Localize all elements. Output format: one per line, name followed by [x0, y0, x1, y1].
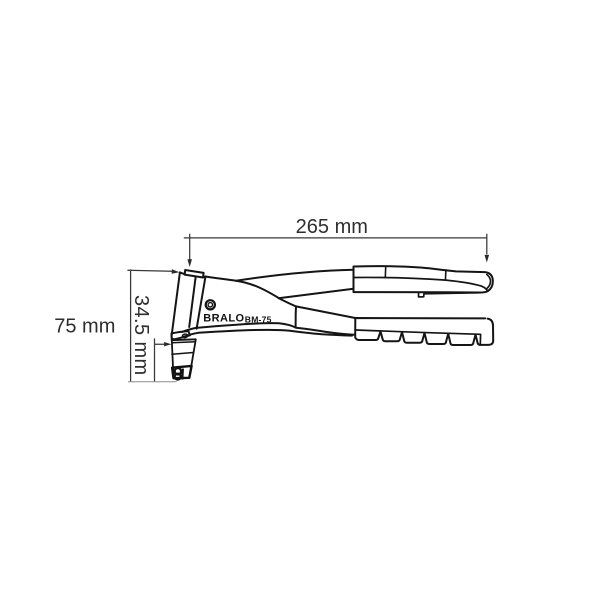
- svg-text:75 mm: 75 mm: [54, 316, 115, 338]
- svg-text:265 mm: 265 mm: [296, 216, 368, 238]
- svg-text:BM-75: BM-75: [245, 314, 272, 324]
- svg-text:34.5 mm: 34.5 mm: [130, 295, 152, 376]
- svg-text:BRALO: BRALO: [203, 313, 244, 325]
